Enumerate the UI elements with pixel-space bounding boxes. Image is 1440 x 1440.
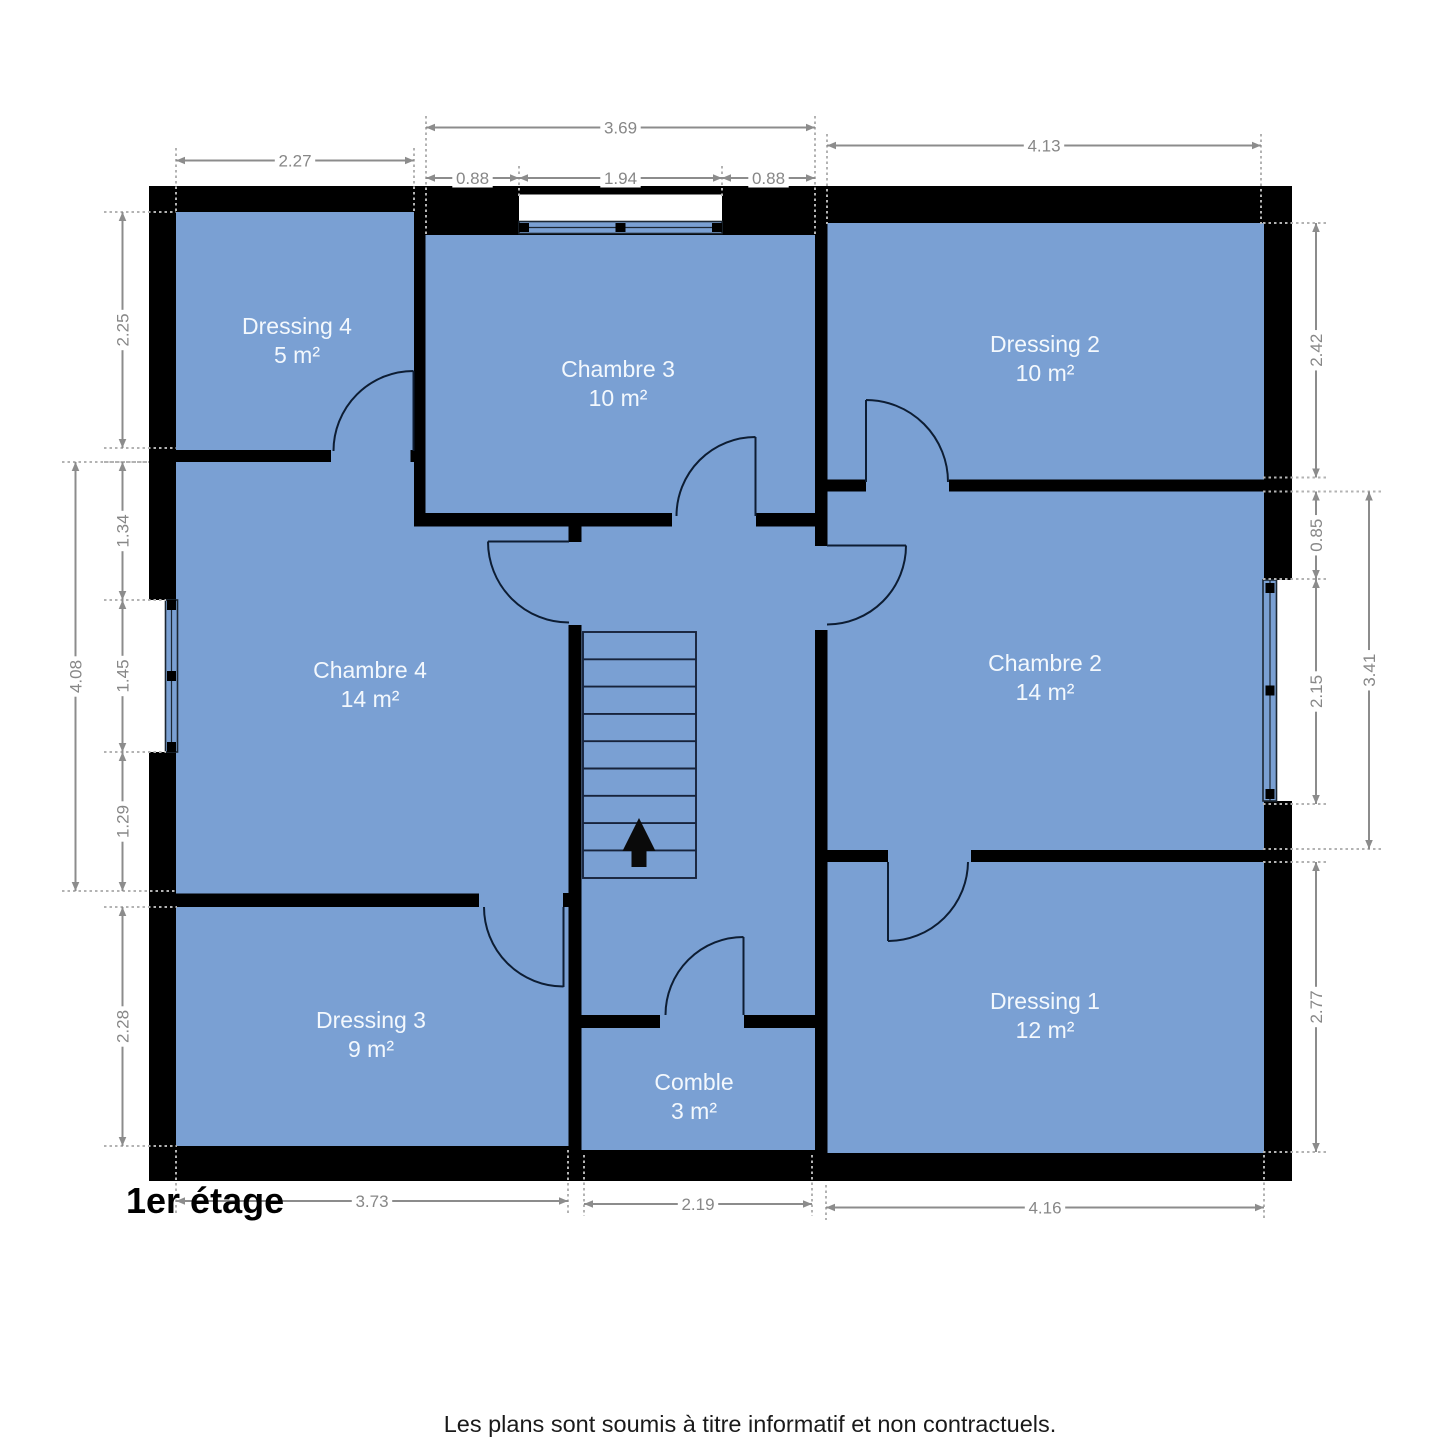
svg-text:0.88: 0.88 [456,169,489,188]
svg-text:5 m²: 5 m² [274,342,320,368]
svg-text:0.88: 0.88 [752,169,785,188]
svg-text:10 m²: 10 m² [1016,360,1075,386]
svg-text:1.45: 1.45 [114,659,133,692]
svg-text:14 m²: 14 m² [341,686,400,712]
svg-text:14 m²: 14 m² [1016,679,1075,705]
svg-text:4.16: 4.16 [1028,1199,1061,1218]
svg-text:Les plans sont soumis à titre: Les plans sont soumis à titre informatif… [444,1411,1057,1437]
svg-text:3.41: 3.41 [1360,654,1379,687]
svg-text:Dressing 3: Dressing 3 [316,1007,426,1033]
svg-text:2.77: 2.77 [1307,990,1326,1023]
svg-text:1.29: 1.29 [114,805,133,838]
svg-text:3.69: 3.69 [604,119,637,138]
svg-text:12 m²: 12 m² [1016,1017,1075,1043]
svg-text:2.25: 2.25 [114,313,133,346]
svg-text:10 m²: 10 m² [589,385,648,411]
svg-text:Chambre 2: Chambre 2 [988,650,1102,676]
svg-text:9 m²: 9 m² [348,1036,394,1062]
svg-text:2.19: 2.19 [681,1195,714,1214]
svg-text:0.85: 0.85 [1307,519,1326,552]
svg-text:4.08: 4.08 [67,660,86,693]
svg-text:1.34: 1.34 [114,514,133,547]
svg-text:3 m²: 3 m² [671,1098,717,1124]
svg-text:Dressing 2: Dressing 2 [990,331,1100,357]
svg-text:Comble: Comble [654,1069,733,1095]
svg-text:Dressing 1: Dressing 1 [990,988,1100,1014]
svg-text:1.94: 1.94 [604,169,637,188]
svg-text:Chambre 3: Chambre 3 [561,356,675,382]
svg-text:4.13: 4.13 [1027,137,1060,156]
svg-text:2.42: 2.42 [1307,334,1326,367]
svg-text:3.73: 3.73 [355,1192,388,1211]
svg-text:Chambre 4: Chambre 4 [313,657,427,683]
svg-text:Dressing 4: Dressing 4 [242,313,352,339]
svg-text:2.27: 2.27 [278,152,311,171]
svg-text:1er étage: 1er étage [126,1180,284,1221]
svg-text:2.15: 2.15 [1307,675,1326,708]
svg-text:2.28: 2.28 [114,1010,133,1043]
